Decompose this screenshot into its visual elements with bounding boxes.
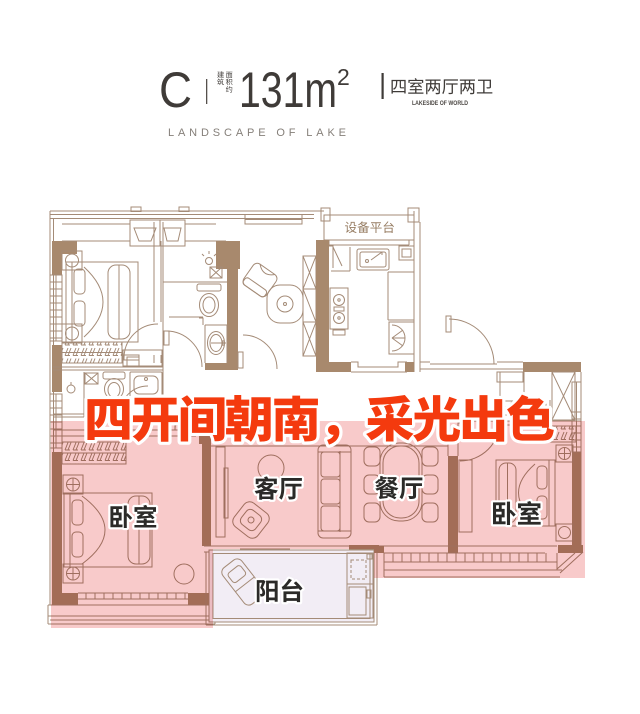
svg-text:131m: 131m <box>239 62 337 118</box>
svg-text:LAKESIDE OF WORLD: LAKESIDE OF WORLD <box>412 100 468 107</box>
svg-text:2: 2 <box>337 64 350 90</box>
svg-text:C: C <box>159 62 192 118</box>
